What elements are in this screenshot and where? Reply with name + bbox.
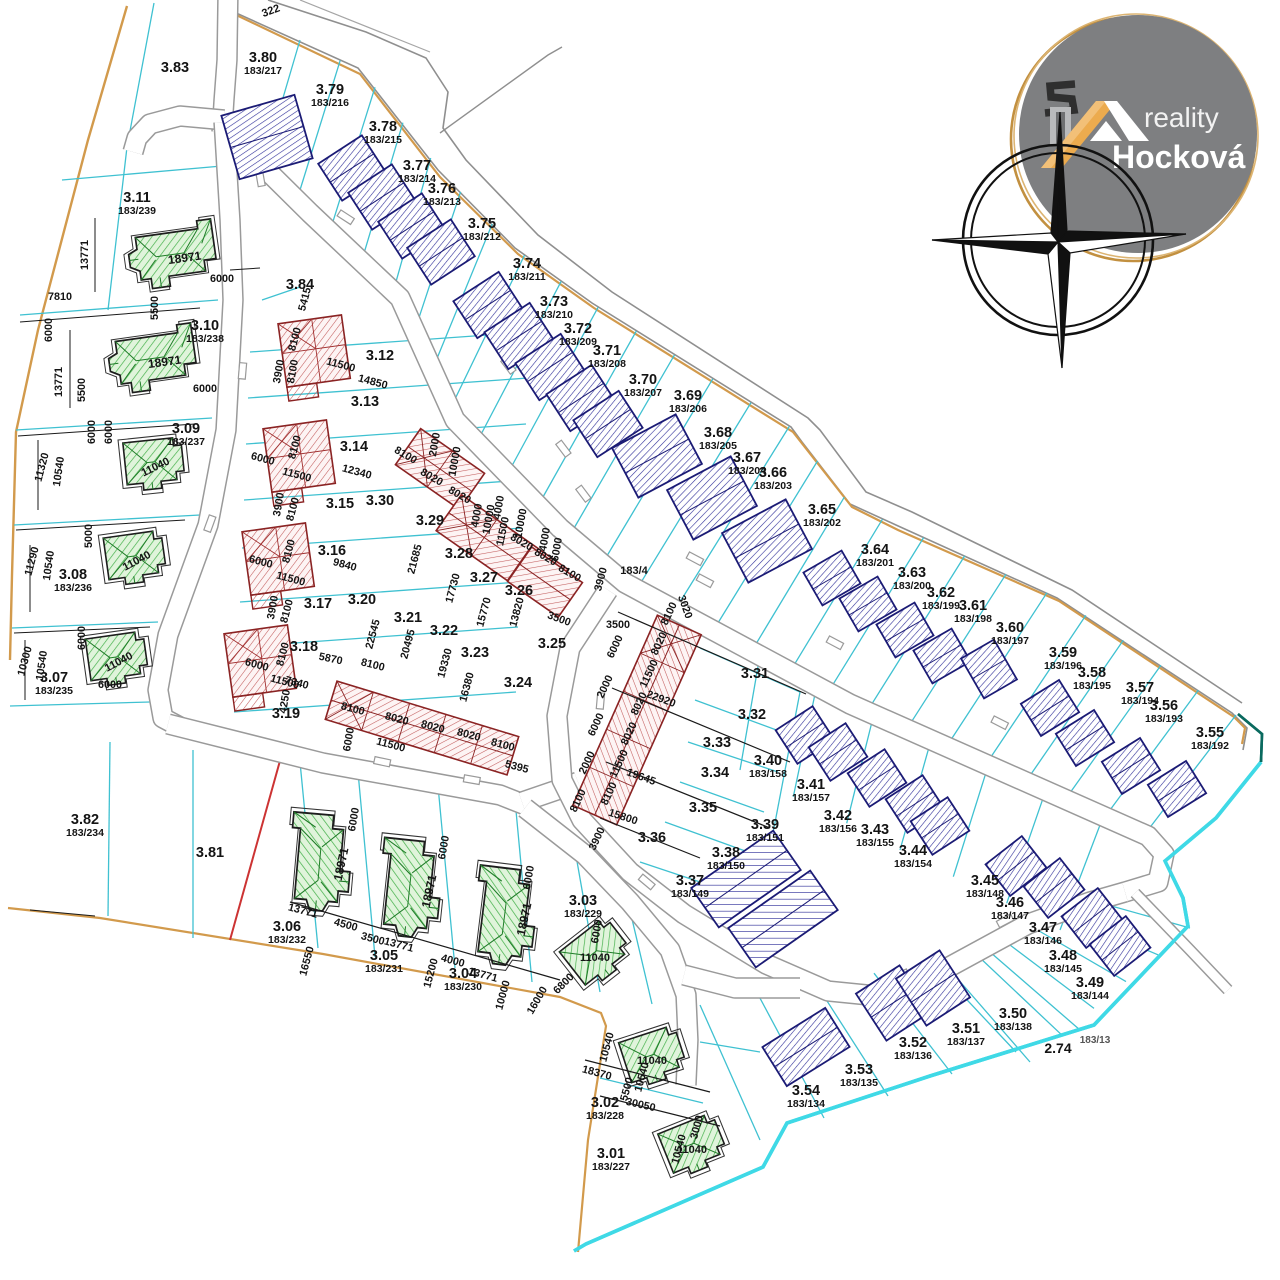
svg-text:3.10183/238: 3.10183/238 bbox=[186, 318, 224, 345]
svg-text:3.21: 3.21 bbox=[394, 610, 422, 626]
svg-text:3.64183/201: 3.64183/201 bbox=[856, 542, 894, 569]
svg-text:5000: 5000 bbox=[83, 524, 95, 548]
svg-text:183/13: 183/13 bbox=[1080, 1035, 1111, 1046]
svg-text:3.35: 3.35 bbox=[689, 800, 717, 816]
svg-text:3.75183/212: 3.75183/212 bbox=[463, 216, 501, 243]
svg-text:3.29: 3.29 bbox=[416, 513, 444, 529]
svg-text:13771: 13771 bbox=[53, 367, 65, 397]
svg-text:3.52183/136: 3.52183/136 bbox=[894, 1035, 932, 1062]
svg-text:3.60183/197: 3.60183/197 bbox=[991, 620, 1029, 647]
svg-text:3.12: 3.12 bbox=[366, 348, 394, 364]
svg-text:5500: 5500 bbox=[76, 378, 88, 402]
svg-text:3.16: 3.16 bbox=[318, 543, 346, 559]
svg-text:3.05183/231: 3.05183/231 bbox=[365, 948, 403, 975]
svg-text:3500: 3500 bbox=[606, 619, 630, 631]
svg-text:3.68183/205: 3.68183/205 bbox=[699, 425, 737, 452]
svg-text:3.34: 3.34 bbox=[701, 765, 729, 781]
svg-text:11040: 11040 bbox=[580, 952, 610, 964]
svg-text:3.38183/150: 3.38183/150 bbox=[707, 845, 745, 872]
svg-text:3.27: 3.27 bbox=[470, 570, 498, 586]
svg-text:3.70183/207: 3.70183/207 bbox=[624, 372, 662, 399]
svg-text:3.62183/199: 3.62183/199 bbox=[922, 585, 960, 612]
svg-text:3.43183/155: 3.43183/155 bbox=[856, 822, 894, 849]
svg-text:3.18: 3.18 bbox=[290, 639, 318, 655]
svg-text:3.30: 3.30 bbox=[366, 493, 394, 509]
svg-text:3.03183/229: 3.03183/229 bbox=[564, 893, 602, 920]
svg-text:3.58183/195: 3.58183/195 bbox=[1073, 665, 1111, 692]
svg-text:3.46183/147: 3.46183/147 bbox=[991, 895, 1029, 922]
svg-text:3.63183/200: 3.63183/200 bbox=[893, 565, 931, 592]
svg-text:3.22: 3.22 bbox=[430, 623, 458, 639]
svg-text:3.71183/208: 3.71183/208 bbox=[588, 343, 626, 370]
svg-text:3.42183/156: 3.42183/156 bbox=[819, 808, 857, 835]
svg-text:3.50183/138: 3.50183/138 bbox=[994, 1006, 1032, 1033]
svg-text:3.06183/232: 3.06183/232 bbox=[268, 919, 306, 946]
svg-text:3.83: 3.83 bbox=[161, 60, 189, 76]
svg-text:3.31: 3.31 bbox=[741, 666, 769, 682]
svg-text:3.54183/134: 3.54183/134 bbox=[787, 1083, 825, 1110]
svg-text:reality: reality bbox=[1144, 102, 1219, 133]
svg-text:Hocková: Hocková bbox=[1112, 139, 1246, 175]
svg-text:6000: 6000 bbox=[98, 679, 122, 691]
svg-text:3.25: 3.25 bbox=[538, 636, 566, 652]
svg-text:6000: 6000 bbox=[76, 626, 88, 650]
svg-text:3.79183/216: 3.79183/216 bbox=[311, 82, 349, 109]
svg-text:3.51183/137: 3.51183/137 bbox=[947, 1021, 985, 1048]
svg-text:3.41183/157: 3.41183/157 bbox=[792, 777, 830, 804]
svg-text:3.61183/198: 3.61183/198 bbox=[954, 598, 992, 625]
svg-text:3.81: 3.81 bbox=[196, 845, 224, 861]
svg-text:3.37183/149: 3.37183/149 bbox=[671, 873, 709, 900]
svg-text:6000: 6000 bbox=[210, 273, 234, 285]
svg-text:3.65183/202: 3.65183/202 bbox=[803, 502, 841, 529]
svg-text:3.13: 3.13 bbox=[351, 394, 379, 410]
svg-text:3.44183/154: 3.44183/154 bbox=[894, 843, 932, 870]
svg-text:6000: 6000 bbox=[86, 420, 98, 444]
svg-text:3.40183/158: 3.40183/158 bbox=[749, 753, 787, 780]
svg-text:3.33: 3.33 bbox=[703, 735, 731, 751]
svg-text:5500: 5500 bbox=[149, 296, 161, 320]
svg-text:3.01183/227: 3.01183/227 bbox=[592, 1146, 630, 1173]
svg-text:3.23: 3.23 bbox=[461, 645, 489, 661]
svg-text:3.20: 3.20 bbox=[348, 592, 376, 608]
svg-text:3.28: 3.28 bbox=[445, 546, 473, 562]
svg-text:183/4: 183/4 bbox=[620, 565, 648, 577]
svg-text:3.14: 3.14 bbox=[340, 439, 368, 455]
svg-text:3.11183/239: 3.11183/239 bbox=[118, 190, 156, 217]
svg-text:3.72183/209: 3.72183/209 bbox=[559, 321, 597, 348]
svg-text:3.53183/135: 3.53183/135 bbox=[840, 1062, 878, 1089]
svg-text:3.36: 3.36 bbox=[638, 830, 666, 846]
svg-text:3.15: 3.15 bbox=[326, 496, 354, 512]
svg-text:3.59183/196: 3.59183/196 bbox=[1044, 645, 1082, 672]
svg-text:3.73183/210: 3.73183/210 bbox=[535, 294, 573, 321]
svg-text:6000: 6000 bbox=[103, 420, 115, 444]
svg-text:3.08183/236: 3.08183/236 bbox=[54, 567, 92, 594]
svg-text:3.49183/144: 3.49183/144 bbox=[1071, 975, 1109, 1002]
svg-text:13771: 13771 bbox=[79, 240, 91, 270]
svg-text:2.74: 2.74 bbox=[1044, 1040, 1071, 1056]
svg-text:3.82183/234: 3.82183/234 bbox=[66, 812, 104, 839]
svg-text:3.69183/206: 3.69183/206 bbox=[669, 388, 707, 415]
svg-text:3.55183/192: 3.55183/192 bbox=[1191, 725, 1229, 752]
svg-text:3.74183/211: 3.74183/211 bbox=[508, 256, 546, 283]
svg-text:3.66183/203: 3.66183/203 bbox=[754, 465, 792, 492]
svg-text:7810: 7810 bbox=[48, 291, 72, 303]
svg-text:3.24: 3.24 bbox=[504, 675, 532, 691]
svg-text:3.26: 3.26 bbox=[505, 583, 533, 599]
svg-text:3.17: 3.17 bbox=[304, 596, 332, 612]
svg-text:3.56183/193: 3.56183/193 bbox=[1145, 698, 1183, 725]
svg-text:3.48183/145: 3.48183/145 bbox=[1044, 948, 1082, 975]
svg-text:3.32: 3.32 bbox=[738, 707, 766, 723]
svg-text:3.80183/217: 3.80183/217 bbox=[244, 50, 282, 77]
svg-text:6000: 6000 bbox=[43, 318, 55, 342]
svg-text:3.76183/213: 3.76183/213 bbox=[423, 181, 461, 208]
svg-text:3.78183/215: 3.78183/215 bbox=[364, 119, 402, 146]
svg-text:6000: 6000 bbox=[193, 383, 217, 395]
svg-text:3.47183/146: 3.47183/146 bbox=[1024, 920, 1062, 947]
